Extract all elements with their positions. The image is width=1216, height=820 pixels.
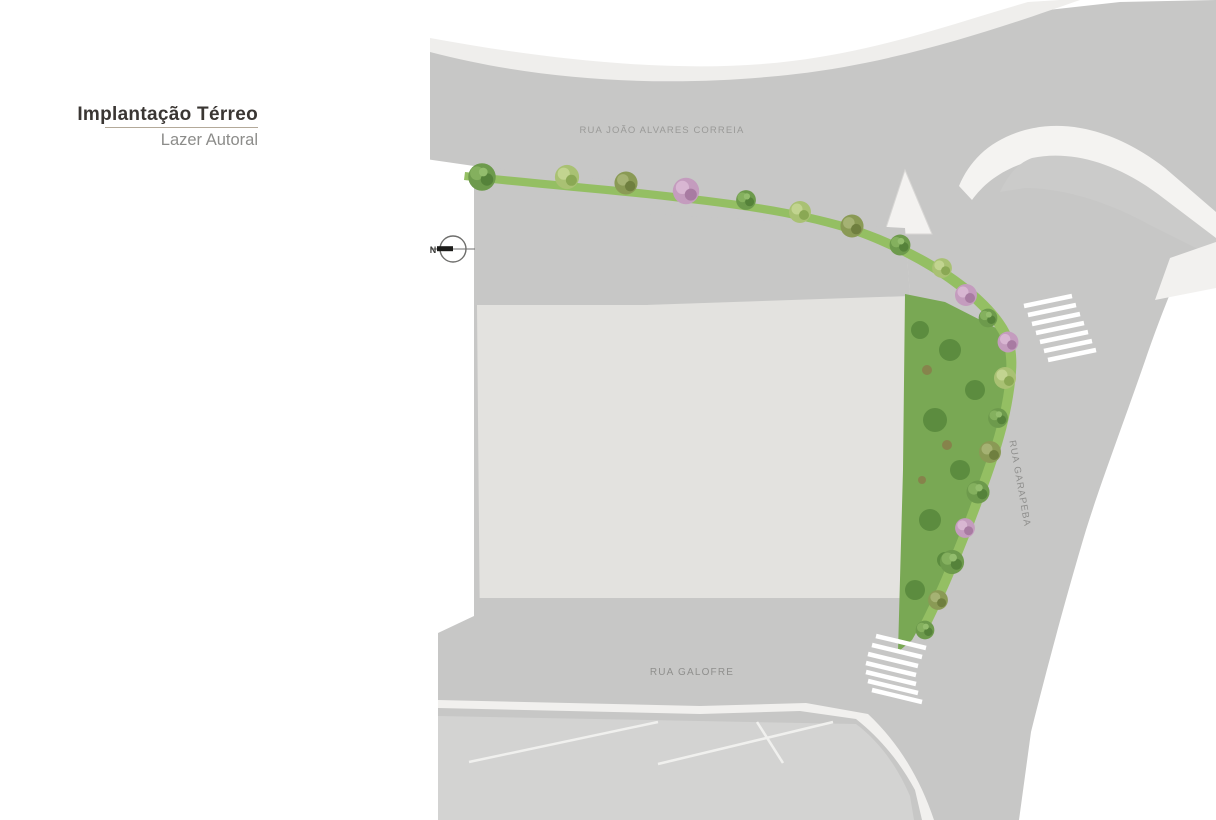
svg-text:N: N	[430, 245, 437, 255]
svg-text:RUA GALOFRE: RUA GALOFRE	[650, 667, 734, 678]
svg-text:RUA JOÃO ALVARES CORREIA: RUA JOÃO ALVARES CORREIA	[580, 125, 745, 136]
